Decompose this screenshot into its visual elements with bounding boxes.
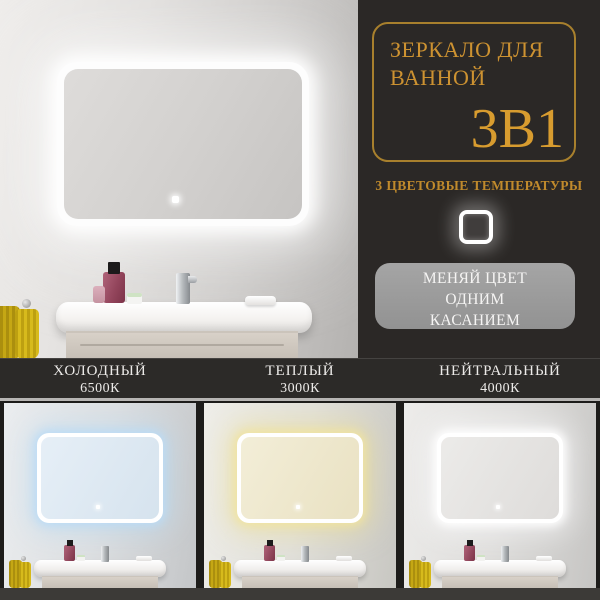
touch-sensor-square-icon <box>459 210 493 244</box>
towel <box>419 562 431 588</box>
faucet <box>101 546 109 562</box>
soap-dish <box>536 556 552 561</box>
towel-hook <box>421 556 426 561</box>
led-mirror-cold <box>37 433 163 523</box>
sink <box>234 560 366 577</box>
mode-warm-temp: 3000К <box>200 381 400 397</box>
towel-hook <box>22 299 31 308</box>
cream-jar <box>477 555 485 561</box>
subtitle: 3 ЦВЕТОВЫЕ ТЕМПЕРАТУРЫ <box>358 178 600 194</box>
badge-3in1: 3В1 <box>471 100 564 158</box>
sink <box>56 302 312 333</box>
cream-jar <box>127 293 142 304</box>
towel <box>19 562 31 588</box>
faucet <box>501 546 509 562</box>
towel <box>219 562 231 588</box>
sink <box>34 560 166 577</box>
mirror-touch-sensor-icon <box>96 505 100 509</box>
mirror-surface <box>64 69 302 219</box>
perfume-cap <box>267 540 273 546</box>
photo-cold-variant <box>4 403 196 588</box>
towel-hook <box>221 556 226 561</box>
faucet-spout <box>188 276 197 283</box>
mode-warm: ТЕПЛЫЙ 3000К <box>200 359 400 398</box>
soap-dish <box>336 556 352 561</box>
mode-warm-name: ТЕПЛЫЙ <box>200 363 400 380</box>
info-line-3: КАСАНИЕМ <box>375 310 575 331</box>
soap-dish <box>245 296 276 305</box>
towel-hook <box>21 556 26 561</box>
mode-cold-temp: 6500К <box>0 381 200 397</box>
mirror-product-promo: ЗЕРКАЛО ДЛЯ ВАННОЙ 3В1 3 ЦВЕТОВЫЕ ТЕМПЕР… <box>0 0 600 600</box>
title-line-2: ВАННОЙ <box>390 64 574 92</box>
cream-jar-lid <box>127 293 142 297</box>
mode-neutral: НЕЙТРАЛЬНЫЙ 4000К <box>400 359 600 398</box>
sink <box>434 560 566 577</box>
perfume-bottle <box>264 545 275 561</box>
drawer-groove <box>80 344 284 346</box>
divider-line <box>0 398 600 401</box>
soap-dish <box>136 556 152 561</box>
mirror-touch-sensor-icon <box>296 505 300 509</box>
mode-neutral-temp: 4000К <box>400 381 600 397</box>
info-box: МЕНЯЙ ЦВЕТ ОДНИМ КАСАНИЕМ <box>375 263 575 329</box>
perfume-bottle <box>103 272 125 303</box>
led-mirror-warm <box>237 433 363 523</box>
mode-cold: ХОЛОДНЫЙ 6500К <box>0 359 200 398</box>
mode-neutral-name: НЕЙТРАЛЬНЫЙ <box>400 363 600 380</box>
info-line-2: ОДНИМ <box>375 289 575 310</box>
perfume-bottle <box>64 545 75 561</box>
bottom-strip <box>0 588 600 600</box>
info-line-1: МЕНЯЙ ЦВЕТ <box>375 268 575 289</box>
small-perfume-flacon <box>93 286 105 303</box>
vanity-cabinet <box>242 576 358 588</box>
photo-neutral-variant <box>404 403 596 588</box>
perfume-cap <box>67 540 73 546</box>
faucet <box>176 273 190 304</box>
info-panel: ЗЕРКАЛО ДЛЯ ВАННОЙ 3В1 3 ЦВЕТОВЫЕ ТЕМПЕР… <box>358 0 600 358</box>
mirror-touch-sensor-icon <box>172 196 179 203</box>
cream-jar <box>77 555 85 561</box>
vanity-cabinet <box>42 576 158 588</box>
vanity-cabinet <box>442 576 558 588</box>
title-box: ЗЕРКАЛО ДЛЯ ВАННОЙ 3В1 <box>372 22 576 162</box>
perfume-bottle <box>464 545 475 561</box>
perfume-cap <box>467 540 473 546</box>
mirror-touch-sensor-icon <box>496 505 500 509</box>
modes-bar: ХОЛОДНЫЙ 6500К ТЕПЛЫЙ 3000К НЕЙТРАЛЬНЫЙ … <box>0 358 600 398</box>
cream-jar <box>277 555 285 561</box>
vanity-cabinet <box>66 331 298 358</box>
perfume-cap <box>108 262 120 274</box>
mirror-surface <box>41 437 159 519</box>
title-line-1: ЗЕРКАЛО ДЛЯ <box>390 36 574 64</box>
led-mirror <box>57 62 309 226</box>
towel <box>15 309 39 358</box>
photo-warm-variant <box>204 403 396 588</box>
faucet <box>301 546 309 562</box>
led-mirror-neutral <box>437 433 563 523</box>
main-photo <box>0 0 358 358</box>
mirror-surface <box>441 437 559 519</box>
mirror-surface <box>241 437 359 519</box>
mode-cold-name: ХОЛОДНЫЙ <box>0 363 200 380</box>
